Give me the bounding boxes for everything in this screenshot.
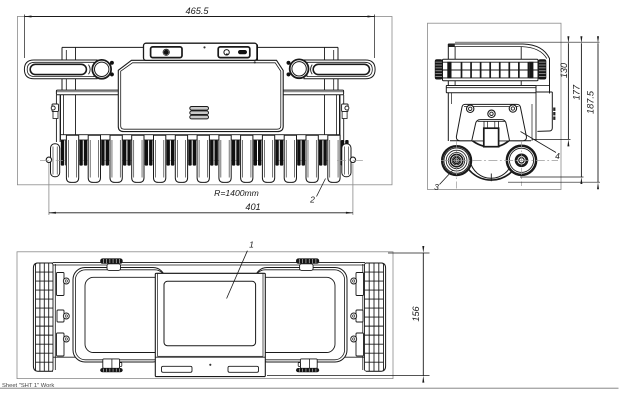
svg-text:1: 1 [249, 240, 254, 250]
svg-text:Sheet "SHT 1" Work: Sheet "SHT 1" Work [2, 383, 54, 389]
svg-text:R=1400mm: R=1400mm [214, 188, 259, 198]
svg-text:187.5: 187.5 [585, 90, 595, 114]
svg-text:130: 130 [559, 62, 569, 78]
svg-text:4: 4 [555, 151, 560, 161]
svg-text:2: 2 [309, 195, 315, 205]
svg-text:3: 3 [434, 182, 439, 192]
svg-text:401: 401 [245, 202, 260, 212]
svg-text:156: 156 [411, 305, 421, 321]
svg-text:465.5: 465.5 [186, 6, 210, 16]
svg-text:177: 177 [571, 84, 581, 100]
